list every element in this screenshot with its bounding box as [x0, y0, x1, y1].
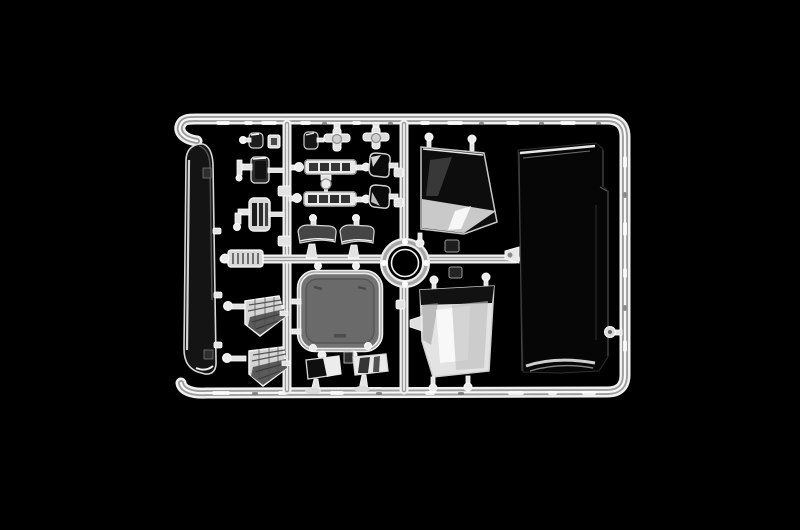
clip-a	[268, 135, 280, 148]
runner-clip-dark-b	[449, 267, 462, 278]
runner-clip-dark-a	[445, 240, 459, 252]
photo-stage	[0, 0, 800, 530]
sprue-photo	[0, 0, 800, 530]
windshield-glass	[518, 143, 608, 373]
